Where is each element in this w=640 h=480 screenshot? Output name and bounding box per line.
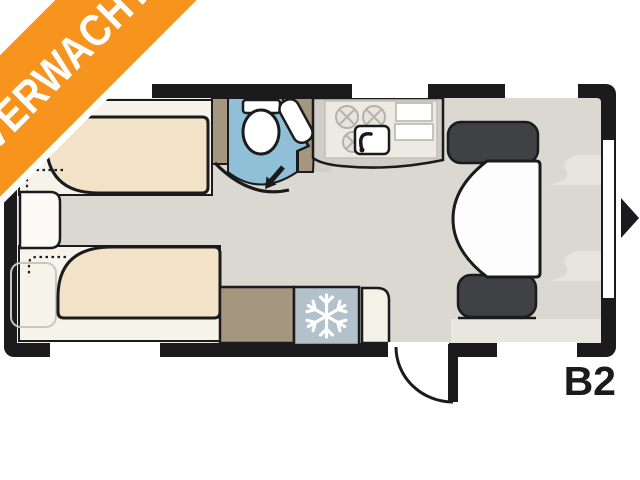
bathroom-wall-left [212,98,228,164]
window-right [603,140,614,298]
model-label: B2 [564,361,616,402]
window-bottom-1 [50,342,160,359]
seat-plinth [451,319,601,343]
toilet-icon [243,110,279,154]
dinette-seat-bottom [458,275,536,317]
bed-bottom [58,247,220,318]
bedside-cabinet [20,192,60,248]
dinette-seat-top [448,122,538,163]
worktop-panel-1 [396,103,432,121]
window-top-2 [352,79,428,98]
entry-arrow-icon [621,198,639,238]
entrance-cabinet [362,288,389,343]
faucet-base [360,148,365,153]
wardrobe [220,287,294,343]
kitchen [313,98,443,168]
window-top-3 [505,79,578,98]
window-bottom-2 [497,342,577,359]
entrance-door-panel [448,344,458,402]
page: VERWACHT B2 [0,0,640,480]
bedroom-aisle [57,196,212,246]
worktop-panel-2 [395,124,433,140]
